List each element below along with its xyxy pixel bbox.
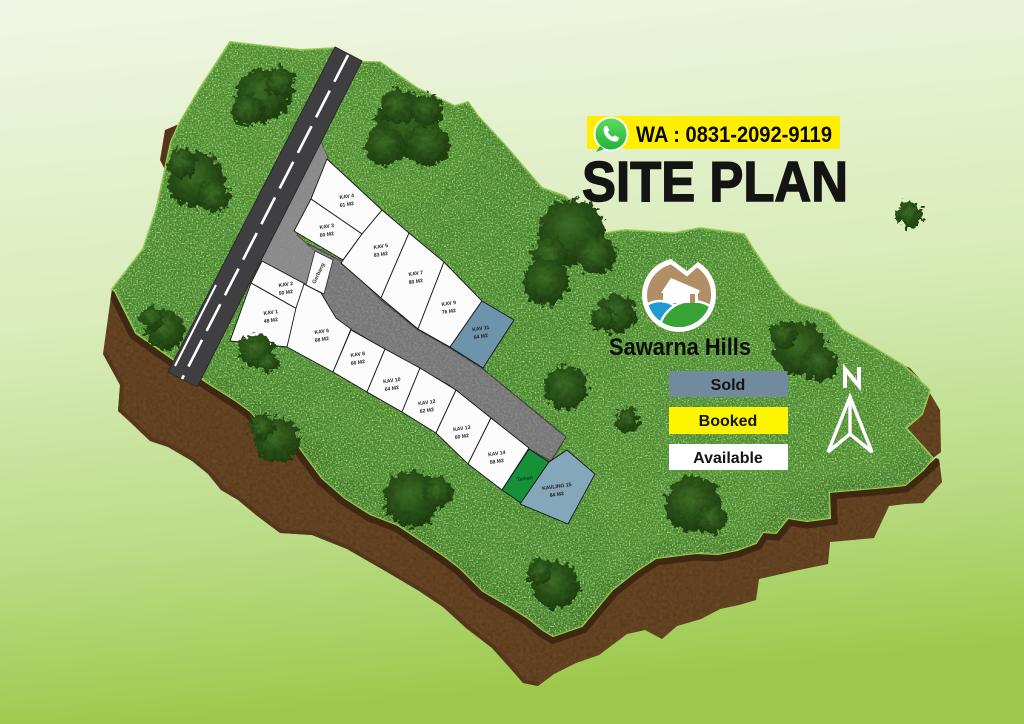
svg-text:Sold: Sold [711, 377, 746, 394]
svg-text:WA : 0831-2092-9119: WA : 0831-2092-9119 [636, 122, 832, 147]
svg-text:Available: Available [693, 450, 763, 467]
svg-text:SITE PLAN: SITE PLAN [582, 150, 848, 214]
svg-text:Sawarna Hills: Sawarna Hills [609, 334, 751, 361]
svg-text:Booked: Booked [699, 413, 758, 430]
